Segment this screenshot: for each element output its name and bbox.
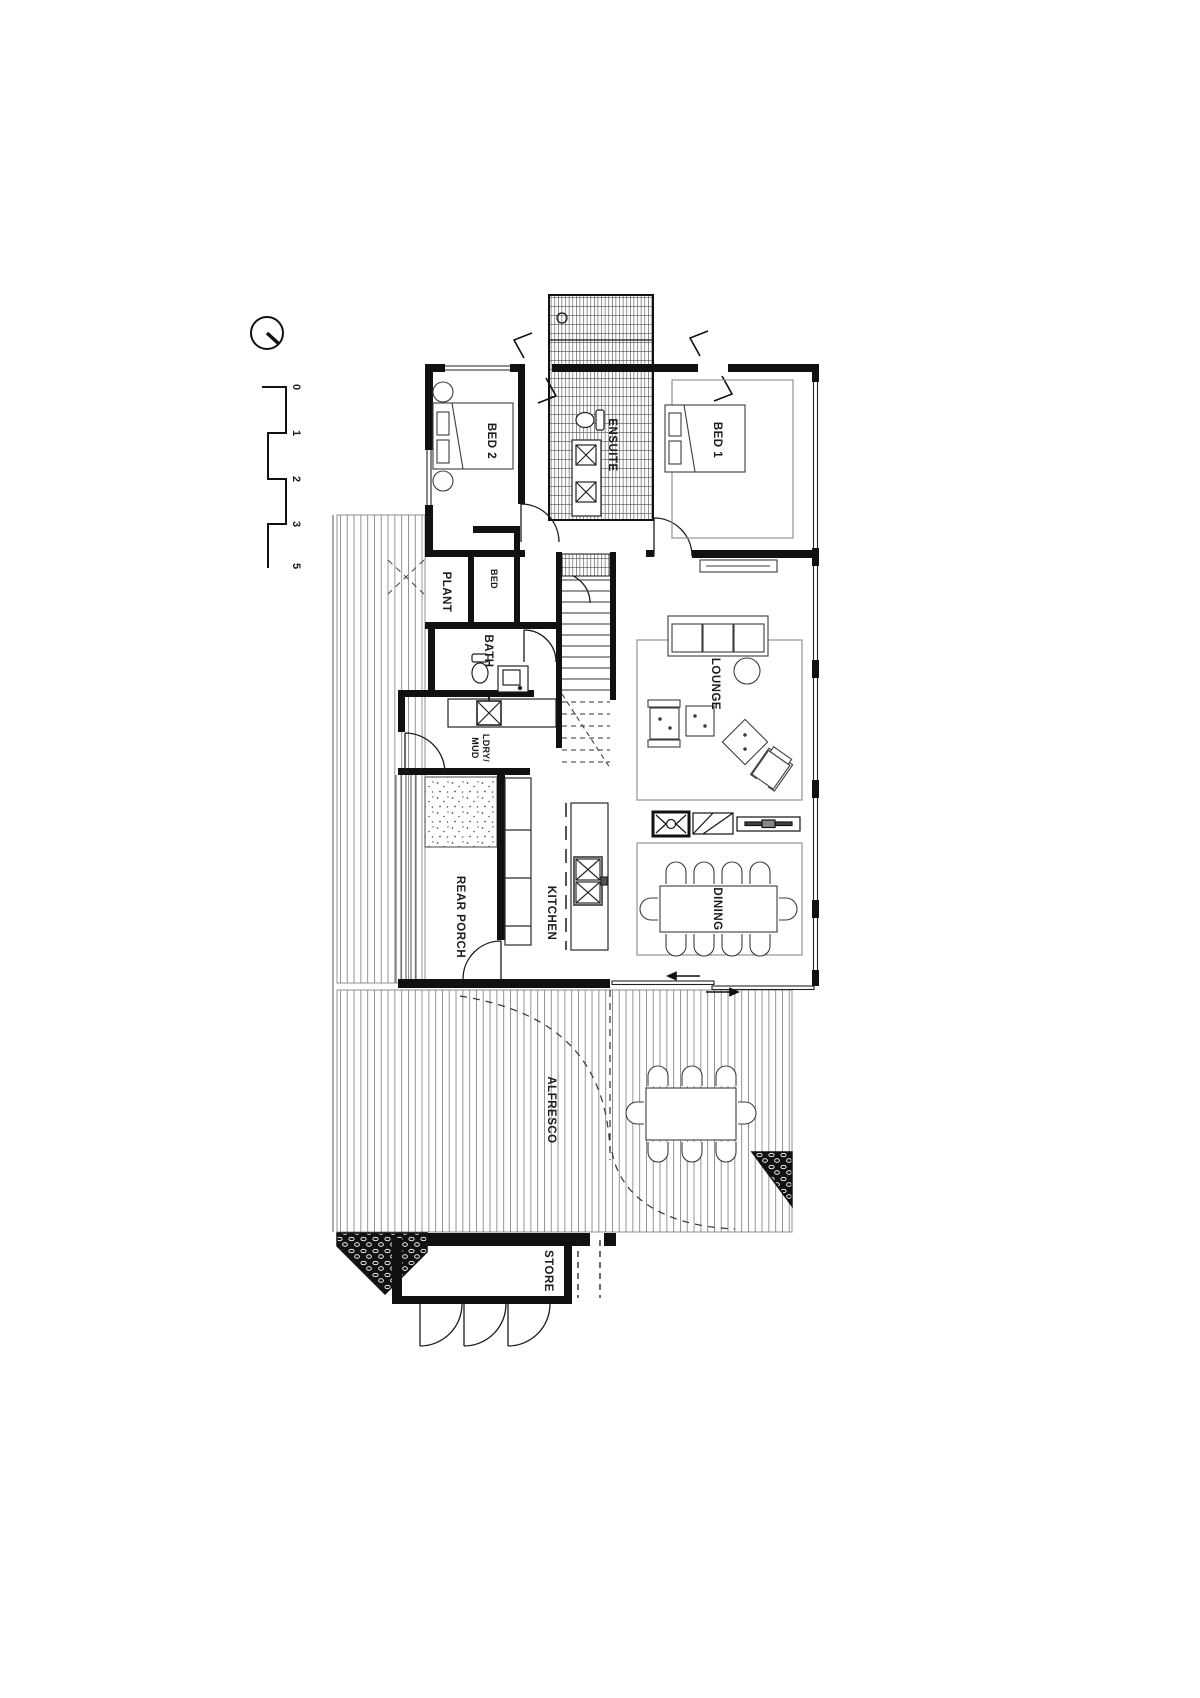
kitchen-wall-cabinets — [505, 778, 531, 945]
floor-plan-drawing: 0 1 2 3 5 BED 2 ENSUITE BED 1 PLANT BED … — [0, 0, 1200, 1698]
porch-concrete — [425, 777, 497, 847]
scale-label-5: 5 — [290, 563, 302, 569]
bath-fixtures — [472, 654, 528, 692]
room-label-kitchen: KITCHEN — [545, 886, 557, 941]
room-label-ensuite: ENSUITE — [606, 418, 618, 471]
scale-label-2: 2 — [290, 476, 302, 482]
wood-storage-icon — [693, 813, 733, 834]
staircase — [562, 554, 610, 768]
laundry-bench — [448, 697, 556, 727]
fireplace-media-units — [653, 812, 800, 836]
room-label-store: STORE — [542, 1250, 554, 1292]
svg-text:LDRY/: LDRY/ — [481, 734, 491, 762]
side-table-icon — [686, 706, 714, 736]
room-label-dining: DINING — [711, 887, 723, 930]
north-arrow-icon — [251, 317, 283, 349]
room-label-alfresco: ALFRESCO — [545, 1076, 557, 1143]
scale-bar: 0 1 2 3 5 — [262, 384, 302, 569]
room-label-laundry: LDRY/ MUD — [470, 734, 491, 762]
bedside-table-icon — [433, 382, 453, 402]
scale-label-1: 1 — [290, 430, 302, 436]
round-table-icon — [734, 658, 760, 684]
ensuite-room — [549, 295, 653, 520]
ottoman-icon — [722, 719, 767, 764]
bedside-table-icon — [433, 471, 453, 491]
outdoor-table-icon — [646, 1088, 736, 1140]
bed2-furniture — [433, 382, 513, 491]
room-label-bed2: BED 2 — [485, 423, 497, 459]
room-label-rear-porch: REAR PORCH — [454, 876, 466, 958]
bed1-furniture — [665, 380, 793, 572]
scale-label-3: 3 — [290, 521, 302, 527]
sofa-icon — [668, 616, 768, 656]
garden-bed-left — [337, 1233, 427, 1294]
svg-text:MUD: MUD — [470, 737, 480, 759]
side-deck — [337, 515, 425, 983]
scale-label-0: 0 — [290, 384, 302, 390]
floor-plan-page: 0 1 2 3 5 BED 2 ENSUITE BED 1 PLANT BED … — [0, 0, 1200, 1698]
ensuite-vanity-icon — [572, 440, 601, 516]
room-label-bed-cupboard: BED — [489, 569, 499, 589]
room-label-plant: PLANT — [440, 572, 452, 613]
store-doors — [420, 1240, 600, 1346]
room-label-bath: BATH — [482, 634, 494, 667]
room-label-bed1: BED 1 — [711, 422, 723, 458]
room-label-lounge: LOUNGE — [709, 658, 721, 710]
armchair-icon — [648, 700, 680, 747]
